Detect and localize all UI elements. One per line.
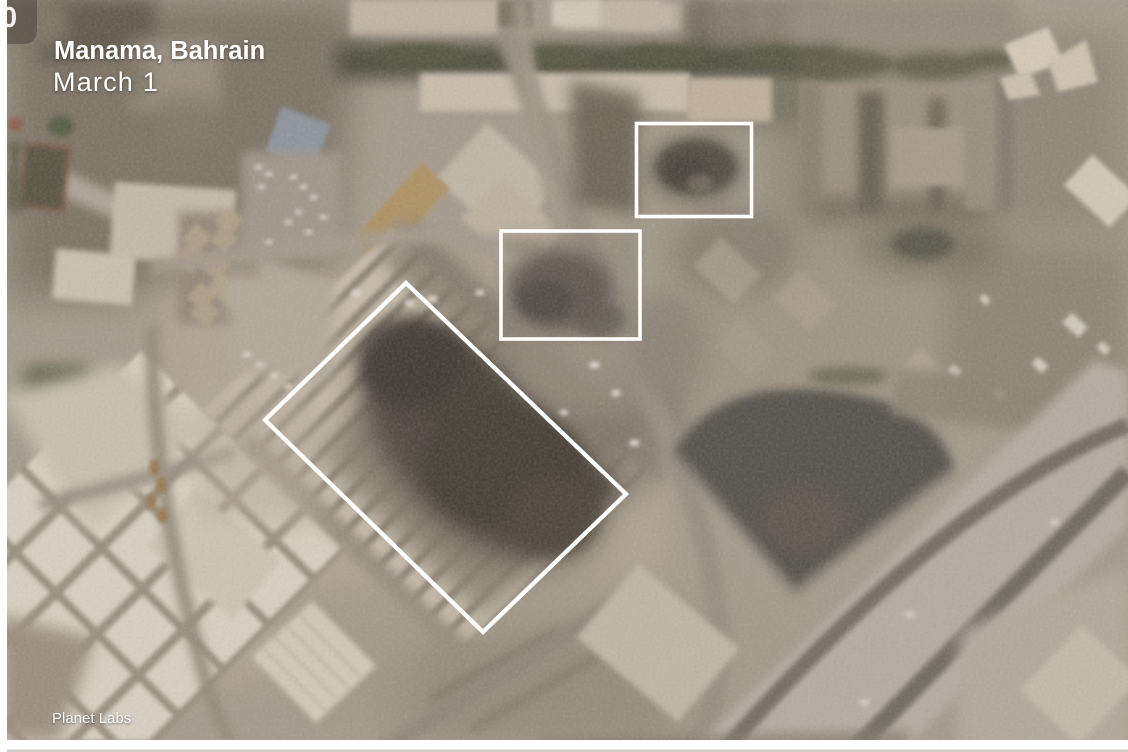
svg-text:Planet Labs: Planet Labs bbox=[52, 710, 131, 727]
svg-text:March 1: March 1 bbox=[53, 67, 159, 97]
svg-text:Manama, Bahrain: Manama, Bahrain bbox=[54, 37, 265, 65]
